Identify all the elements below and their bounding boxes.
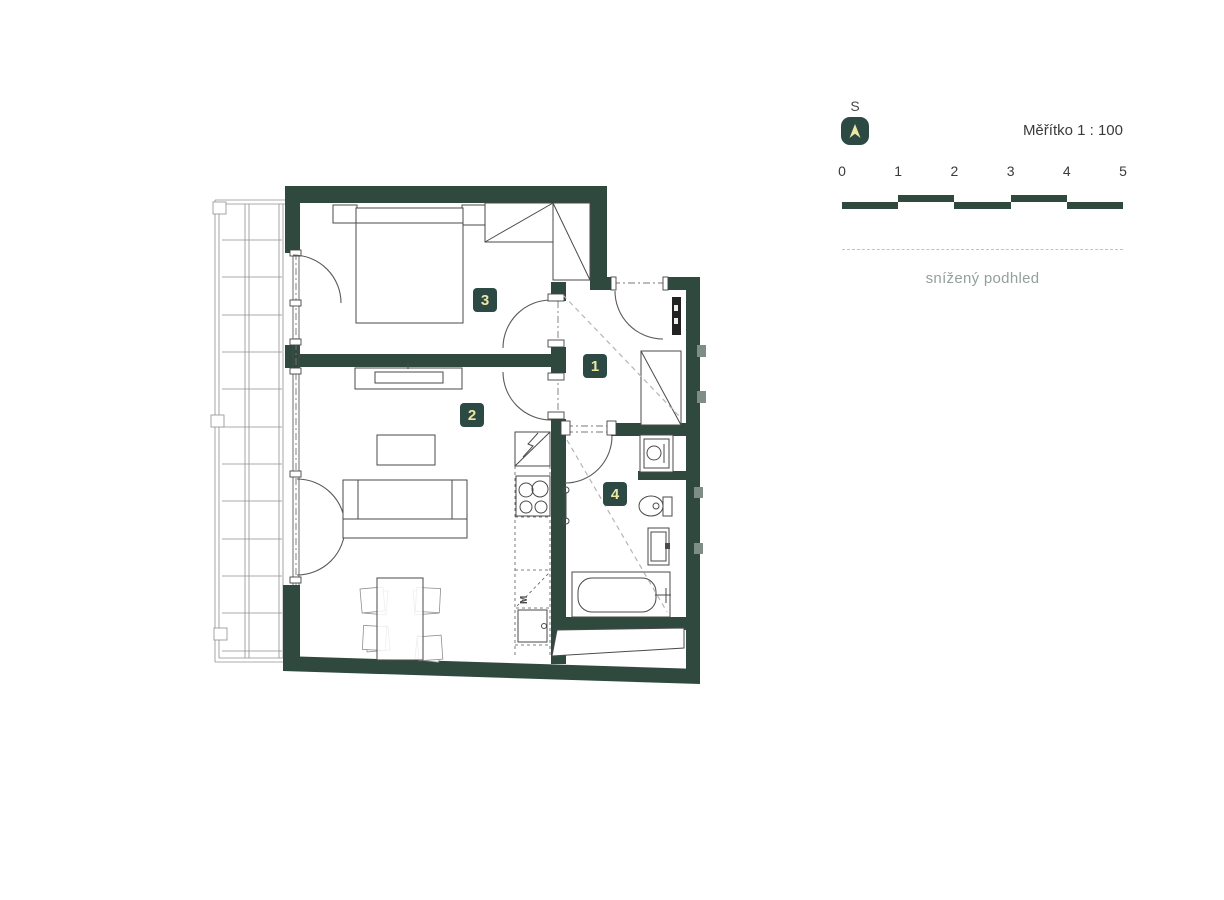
- balcony-windows: [290, 250, 301, 585]
- scale-bar-segments: [842, 195, 1123, 209]
- wardrobe: [553, 203, 590, 280]
- room-badge-3: 3: [473, 288, 497, 312]
- living-room-balcony-door: [297, 479, 345, 575]
- fridge: [515, 432, 550, 466]
- living-room-door: [503, 372, 551, 420]
- balcony-deck-grid: [222, 240, 282, 651]
- washing-machine: [640, 435, 673, 472]
- kitchen: M: [515, 432, 550, 655]
- svg-text:2: 2: [468, 407, 476, 424]
- toilet: [639, 496, 672, 516]
- bathroom-sink: [648, 528, 670, 565]
- scale-bar: 0 1 2 3 4 5: [842, 163, 1123, 213]
- svg-text:1: 1: [591, 358, 599, 375]
- north-badge: [841, 117, 869, 145]
- room-badge-2: 2: [460, 403, 484, 427]
- kitchen-sink: [518, 610, 547, 642]
- scale-tick: 4: [1063, 163, 1071, 179]
- svg-text:4: 4: [611, 486, 620, 503]
- hall-wardrobe: [641, 351, 681, 425]
- room-1-hall: [563, 295, 681, 425]
- bedroom-door: [503, 300, 551, 348]
- balcony-anchor-tab: [213, 202, 226, 214]
- nightstand: [462, 205, 485, 225]
- lowered-ceiling-note: snížený podhled: [842, 270, 1123, 287]
- bed: [356, 208, 463, 323]
- balcony-anchor-tab: [211, 415, 224, 427]
- bedroom-balcony-door: [293, 255, 341, 303]
- scale-tick: 0: [838, 163, 846, 179]
- scale-tick: 3: [1007, 163, 1015, 179]
- floor-plan-page: M: [0, 0, 1224, 900]
- bathroom-door: [565, 436, 612, 483]
- entry-niche: [552, 628, 684, 656]
- scale-tick: 2: [950, 163, 958, 179]
- north-arrow-icon: [848, 123, 862, 139]
- legend-divider: [842, 249, 1123, 250]
- room-badge-1: 1: [583, 354, 607, 378]
- north-indicator: S: [841, 98, 869, 145]
- north-label: S: [841, 98, 869, 114]
- bathtub: [572, 572, 671, 617]
- room-2-living-room: [343, 363, 467, 662]
- room-3-bedroom: [333, 203, 590, 323]
- dining-table-set: [360, 578, 443, 662]
- electrical-panel: [672, 297, 681, 335]
- scale-label: Měřítko 1 : 100: [943, 122, 1123, 139]
- dishwasher: M: [516, 573, 550, 608]
- hob: [516, 476, 550, 516]
- scale-tick: 1: [894, 163, 902, 179]
- room-badge-4: 4: [603, 482, 627, 506]
- svg-text:3: 3: [481, 292, 489, 309]
- wardrobe: [485, 203, 553, 242]
- dining-table: [377, 578, 423, 660]
- scale-ticks: 0 1 2 3 4 5: [842, 163, 1123, 181]
- dishwasher-label: M: [519, 596, 530, 604]
- balcony-anchor-tab: [214, 628, 227, 640]
- coffee-table: [377, 435, 435, 465]
- entrance-door: [615, 291, 663, 339]
- sofa: [343, 480, 467, 538]
- room-4-bathroom: [563, 435, 673, 617]
- nightstand: [333, 205, 357, 223]
- scale-tick: 5: [1119, 163, 1127, 179]
